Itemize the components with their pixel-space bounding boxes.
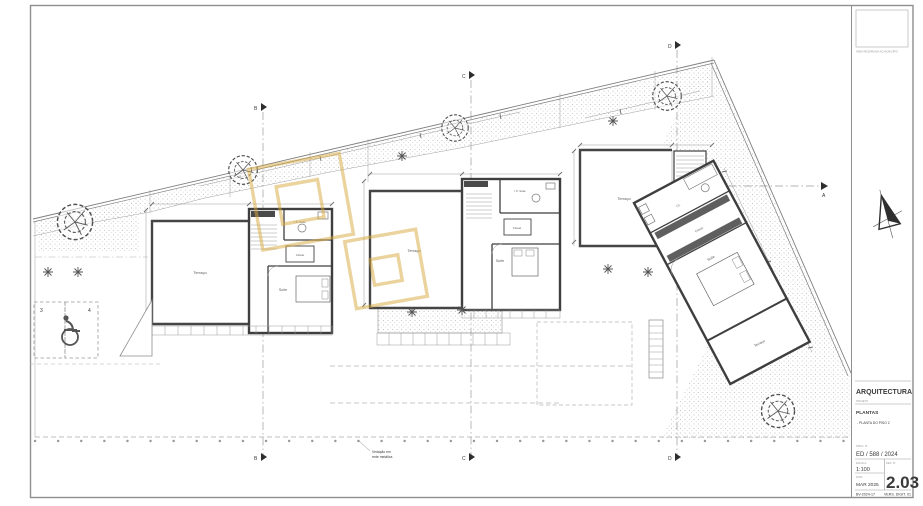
titleblock-process: ED / 588 / 2024 [856, 452, 898, 458]
house1-suite-label: Suite [279, 288, 287, 292]
section-marker-c-bottom: C [462, 456, 466, 462]
section-marker-b-top: B [254, 106, 258, 112]
site-plan-canvas: B B C C D D A Terraço I.S. Suite Closet … [0, 0, 923, 506]
house2-closet-label: Closet [513, 226, 522, 230]
titleblock-process-caption: PROC. Nº [856, 444, 868, 448]
parking-area: 3 4 [30, 300, 160, 364]
section-marker-a: A [822, 193, 826, 199]
titleblock-date-caption: DATA [856, 475, 863, 479]
plant-icon [608, 116, 618, 126]
fence-note-line2: rede metálica [372, 455, 392, 459]
tree-icon [442, 115, 468, 141]
titleblock-subtitle: - PLANTA DO PISO 2 [857, 421, 890, 425]
plant-icon [73, 267, 83, 277]
plant-icon [643, 267, 653, 277]
section-marker-b-bottom: B [254, 456, 258, 462]
tree-icon [762, 395, 795, 428]
titleblock-number: 2.03 [886, 473, 919, 492]
titleblock-scale-caption: ESCALA [856, 461, 867, 465]
titleblock-ref: BV-2024-17 [856, 493, 875, 497]
plant-icon [407, 307, 417, 317]
house2-suite-label: Suite [496, 259, 504, 263]
tree-icon [653, 82, 682, 111]
titleblock-scale: 1:100 [856, 467, 870, 473]
lower-level-outlines [330, 322, 632, 405]
plant-icon [457, 305, 467, 315]
plant-icon [43, 267, 53, 277]
house-1: Terraço I.S. Suite Closet Suite [152, 209, 332, 335]
titleblock-discipline: ARQUITECTURA [856, 389, 912, 396]
plant-icon [397, 151, 407, 161]
section-marker-d-top: D [668, 44, 672, 50]
house2-is-label: I.S. Suite [514, 189, 526, 193]
titleblock-version: VERS. DIGIT. 01 [884, 493, 911, 497]
titleblock-date: MAR 2025 [856, 482, 879, 488]
title-block: ARQUITECTURA PROJETO PLANTAS - PLANTA DO… [855, 381, 919, 497]
titleblock-type: PLANTAS [856, 410, 879, 416]
parking-stall-4-label: 4 [88, 308, 91, 314]
fence-note: Vedação em rede metálica [358, 440, 392, 459]
house1-terrace-label: Terraço [193, 270, 207, 275]
tree-icon [57, 204, 92, 239]
house1-closet-label: Closet [296, 253, 305, 257]
fence-note-line1: Vedação em [372, 450, 391, 454]
section-marker-c-top: C [462, 74, 466, 80]
drawing-sheet: B B C C D D A Terraço I.S. Suite Closet … [0, 0, 923, 506]
titleblock-number-caption: DES. Nº [886, 461, 896, 465]
stamp-caption: ÁREA RESERVADA AO MUNICÍPIO [856, 50, 898, 54]
north-arrow-icon [864, 186, 908, 243]
plant-icon [603, 264, 613, 274]
parking-stall-3-label: 3 [40, 308, 43, 314]
section-marker-d-bottom: D [668, 456, 672, 462]
stamp-area: ÁREA RESERVADA AO MUNICÍPIO [856, 10, 908, 54]
titleblock-type-caption: PROJETO [856, 399, 868, 403]
house3-terrace-label: Terraço [617, 196, 631, 201]
